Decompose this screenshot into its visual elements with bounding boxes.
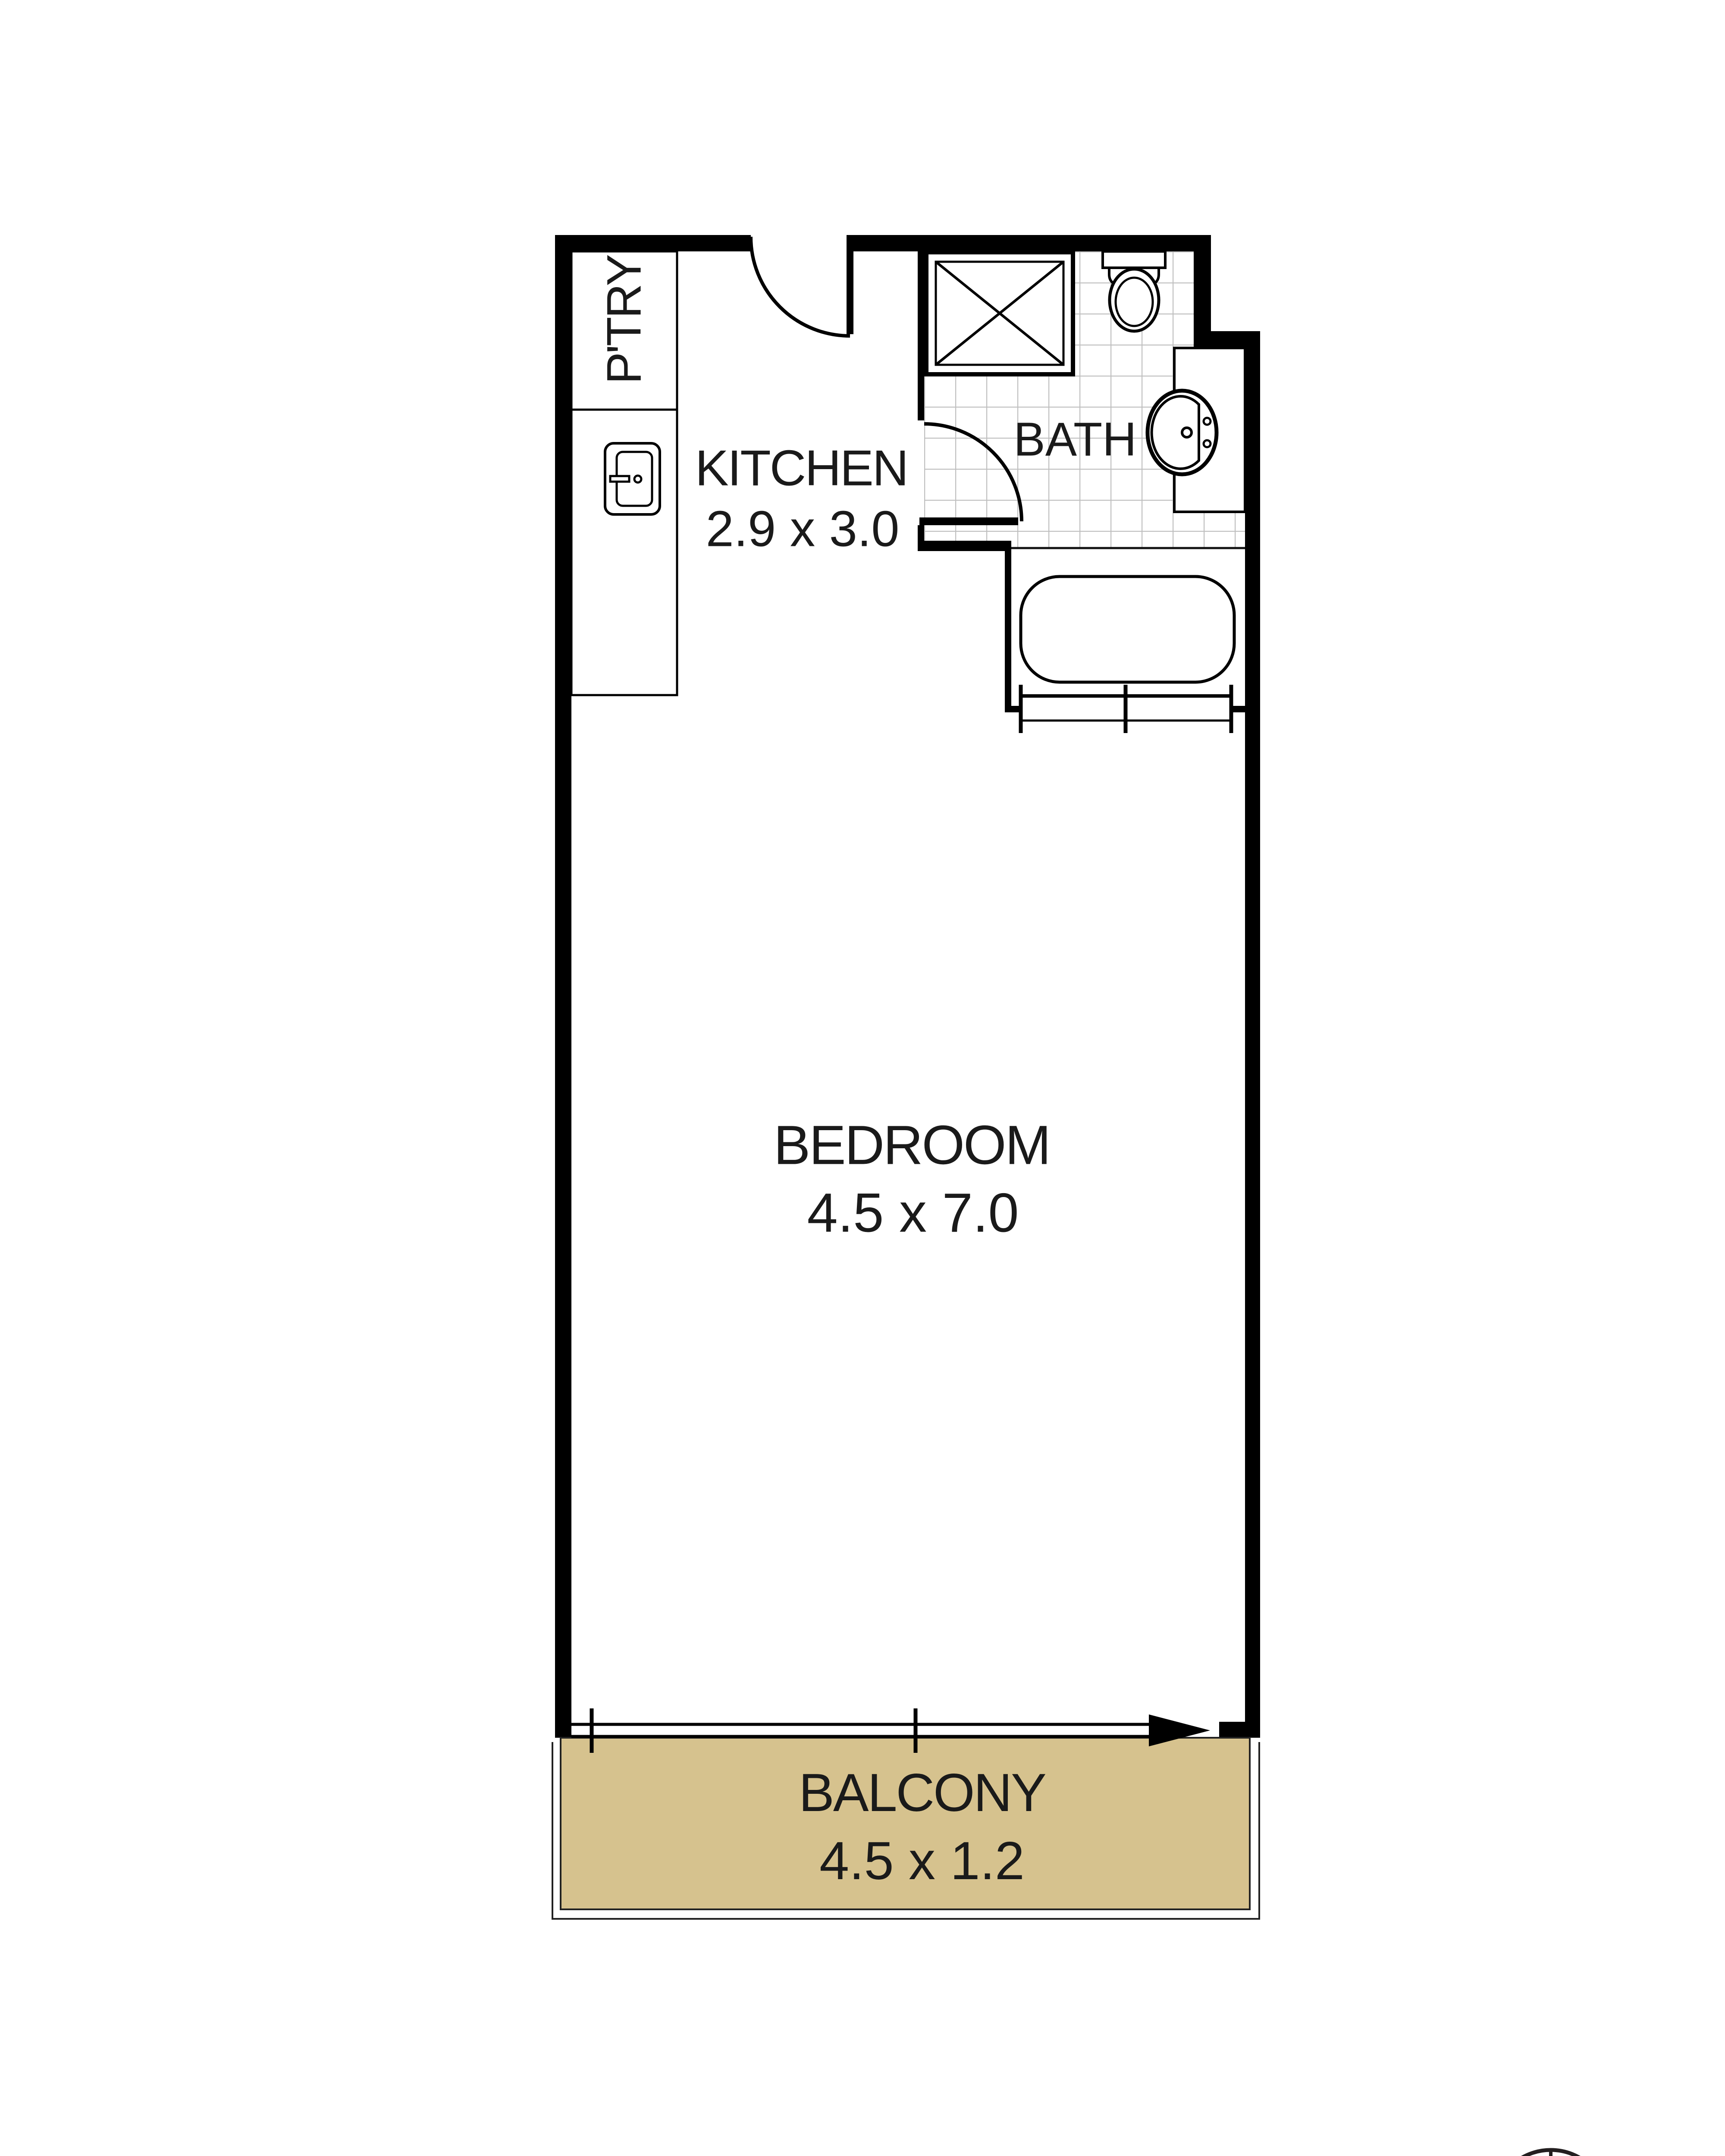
wall-bath-partition — [918, 251, 924, 420]
bath-door-leaf — [919, 517, 1018, 525]
wall-balcony-stub-right — [1219, 1722, 1250, 1738]
room-label-bedroom: BEDROOM — [774, 1115, 1050, 1176]
wall-bath-south — [918, 541, 1011, 551]
room-dims-balcony: 4.5 x 1.2 — [819, 1831, 1025, 1891]
shower-icon — [926, 252, 1073, 374]
basin-tap-dot — [1204, 418, 1211, 425]
room-label-pantry: P'TRY — [597, 255, 651, 384]
sink-tap-dot — [634, 476, 641, 483]
floor-plan-canvas: P'TRY KITCHEN 2.9 x 3.0 BATH BEDROOM 4.5… — [0, 0, 1725, 2156]
room-dims-kitchen: 2.9 x 3.0 — [706, 501, 900, 557]
floor-plan-page: P'TRY KITCHEN 2.9 x 3.0 BATH BEDROOM 4.5… — [0, 0, 1725, 2156]
toilet-bowl-inner — [1116, 278, 1153, 326]
basin-drain — [1182, 428, 1192, 437]
wall-window-stub-left — [1011, 706, 1021, 712]
wall-east — [1245, 331, 1260, 1738]
sink-faucet — [610, 476, 629, 482]
room-label-balcony: BALCONY — [799, 1763, 1045, 1823]
wall-west — [555, 235, 571, 1738]
entry-door-leaf — [847, 235, 853, 334]
basin-tap-dot — [1204, 440, 1211, 447]
room-label-bath: BATH — [1013, 413, 1136, 466]
wall-window-stub-right — [1231, 706, 1249, 712]
bathtub-icon — [1021, 577, 1234, 682]
room-label-kitchen: KITCHEN — [695, 440, 908, 496]
room-dims-bedroom: 4.5 x 7.0 — [807, 1182, 1019, 1244]
kitchen-sink-icon — [605, 443, 660, 514]
wall-tub-alcove-west — [1005, 551, 1011, 712]
wall-top-left — [555, 235, 751, 251]
wall-east-upper — [1194, 235, 1211, 348]
toilet-tank — [1103, 251, 1165, 268]
wall-top-right — [847, 235, 1211, 251]
